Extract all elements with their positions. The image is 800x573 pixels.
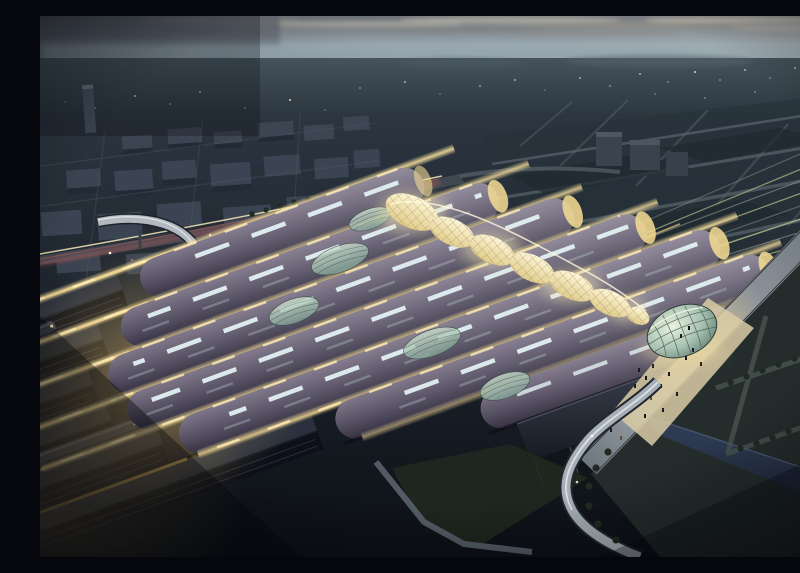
vignette [40, 16, 800, 557]
railway-station-rendering [40, 16, 800, 557]
rendering-canvas [40, 16, 800, 557]
